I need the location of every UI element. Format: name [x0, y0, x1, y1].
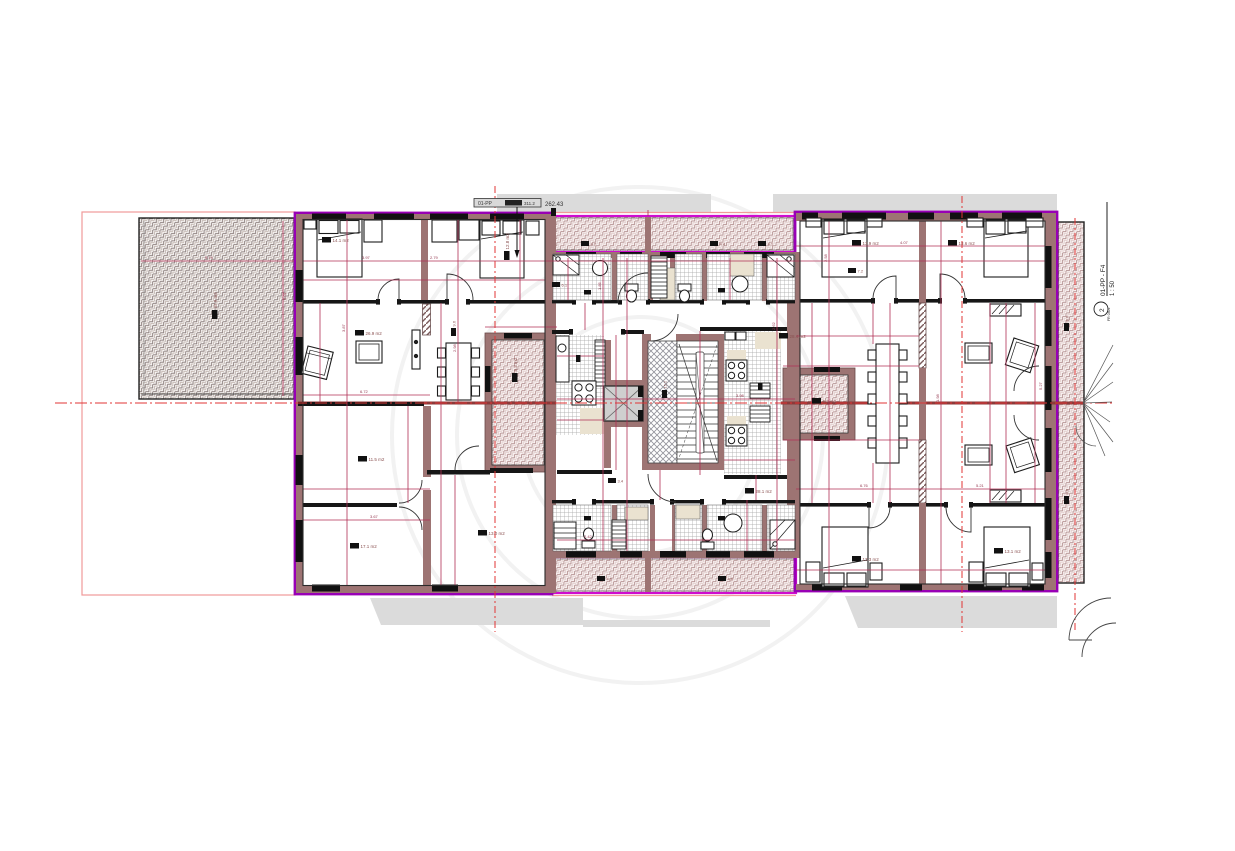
svg-text:5.27: 5.27 — [1038, 381, 1043, 390]
svg-text:262.43: 262.43 — [545, 202, 564, 208]
svg-text:1.98: 1.98 — [935, 393, 940, 402]
svg-text:4.2: 4.2 — [591, 242, 597, 247]
svg-text:3.87: 3.87 — [341, 323, 346, 332]
svg-text:1.85: 1.85 — [597, 281, 602, 290]
svg-text:13.3 m2: 13.3 m2 — [863, 557, 880, 562]
svg-text:13.0 m2: 13.0 m2 — [489, 531, 506, 536]
svg-text:3.4: 3.4 — [618, 479, 624, 484]
svg-text:2.62: 2.62 — [771, 321, 776, 330]
svg-text:9.74: 9.74 — [205, 255, 214, 260]
svg-text:2.79: 2.79 — [430, 255, 439, 260]
svg-text:8.6: 8.6 — [1065, 488, 1070, 494]
svg-text:13.1 m2: 13.1 m2 — [1005, 549, 1022, 554]
svg-text:2.58: 2.58 — [823, 253, 828, 262]
svg-text:6.76: 6.76 — [860, 483, 869, 488]
svg-text:11.5 m2: 11.5 m2 — [369, 457, 385, 462]
svg-text:1 : 50: 1 : 50 — [1110, 280, 1116, 296]
svg-text:6.2 m2: 6.2 m2 — [823, 399, 837, 404]
svg-text:01-PP: 01-PP — [478, 201, 493, 207]
svg-text:7.2: 7.2 — [858, 269, 864, 274]
svg-text:17.1 m2: 17.1 m2 — [361, 544, 378, 549]
svg-text:9.6: 9.6 — [452, 320, 457, 326]
svg-text:4.07: 4.07 — [900, 240, 909, 245]
svg-text:15.2: 15.2 — [663, 380, 668, 389]
svg-text:28.4 m2: 28.4 m2 — [790, 334, 807, 339]
svg-text:3.67: 3.67 — [370, 514, 379, 519]
svg-text:5.61: 5.61 — [282, 291, 287, 300]
svg-text:2.42: 2.42 — [584, 534, 593, 539]
svg-text:5.21: 5.21 — [976, 483, 985, 488]
svg-text:3.98: 3.98 — [736, 393, 745, 398]
svg-text:4.6: 4.6 — [728, 577, 734, 582]
svg-text:26.9 m2: 26.9 m2 — [366, 331, 383, 336]
svg-text:8.6: 8.6 — [1065, 315, 1070, 321]
svg-text:14.1 m2: 14.1 m2 — [333, 238, 350, 243]
svg-text:2: 2 — [1099, 308, 1106, 312]
svg-text:4.1: 4.1 — [768, 242, 774, 247]
svg-text:311.2: 311.2 — [524, 201, 535, 206]
svg-text:FR 0401: FR 0401 — [1107, 308, 1111, 321]
svg-text:37.9 m2: 37.9 m2 — [213, 292, 218, 309]
svg-text:3.97: 3.97 — [362, 255, 371, 260]
svg-text:13.6 m2: 13.6 m2 — [959, 241, 976, 246]
svg-text:8.3 m2: 8.3 m2 — [513, 357, 518, 371]
svg-text:6.1: 6.1 — [562, 283, 568, 288]
svg-text:2.98: 2.98 — [452, 343, 457, 352]
svg-text:4.6: 4.6 — [607, 577, 613, 582]
svg-text:13.9 m2: 13.9 m2 — [863, 241, 880, 246]
svg-text:6.72: 6.72 — [360, 389, 369, 394]
svg-text:01-PP - F4: 01-PP - F4 — [1100, 264, 1107, 296]
svg-text:28.1 m2: 28.1 m2 — [756, 489, 773, 494]
svg-text:12.8 m2: 12.8 m2 — [505, 233, 510, 250]
svg-text:4.4: 4.4 — [720, 242, 726, 247]
